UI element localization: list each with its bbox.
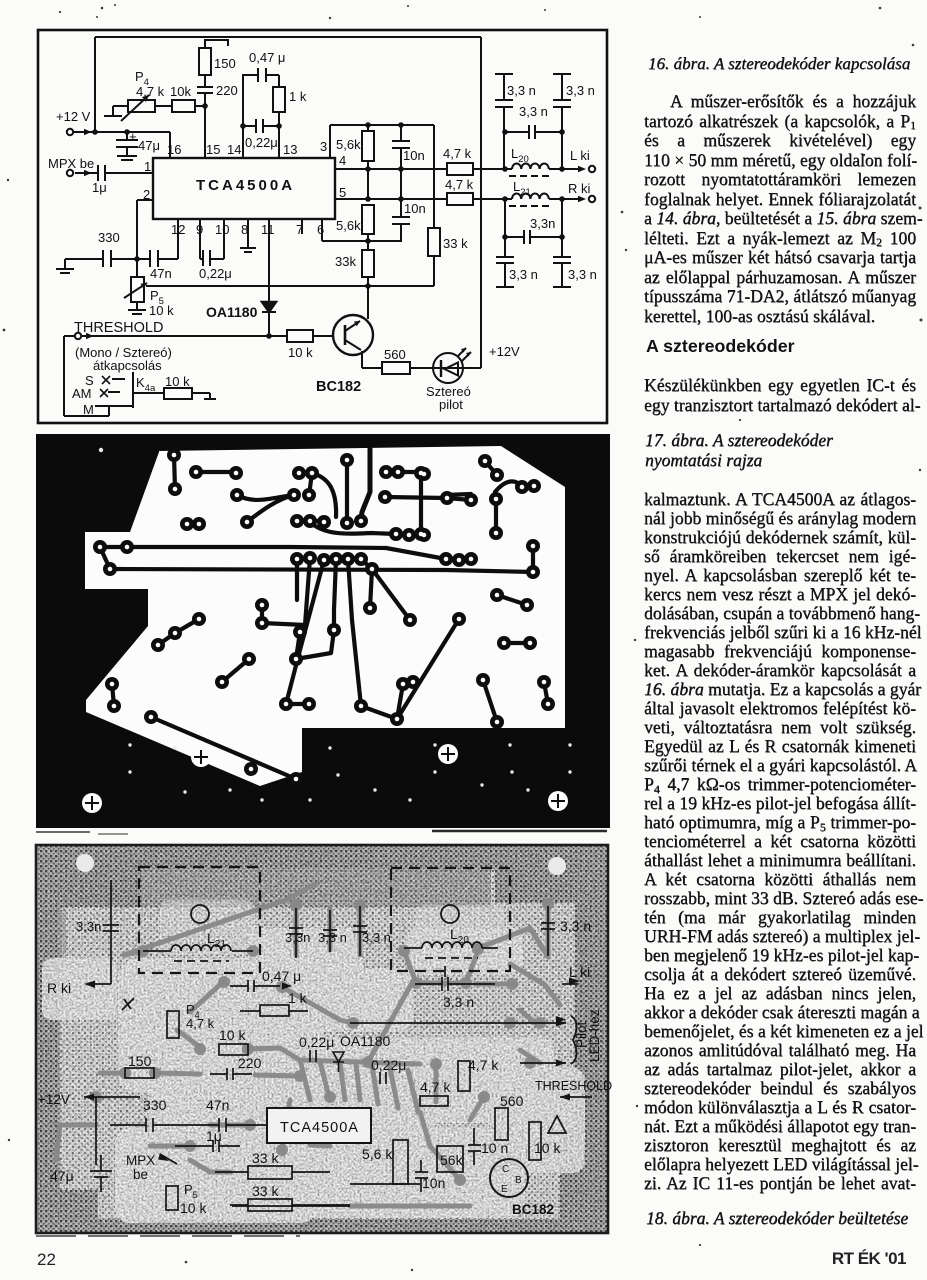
svg-text:0,22μ: 0,22μ (299, 1034, 334, 1050)
svg-text:3,3 n: 3,3 n (318, 930, 347, 945)
svg-text:3,3 n: 3,3 n (362, 930, 391, 945)
svg-text:150: 150 (128, 1053, 152, 1069)
svg-text:4,7 k: 4,7 k (186, 1016, 215, 1031)
svg-text:47n: 47n (206, 1097, 229, 1113)
svg-text:1 k: 1 k (288, 990, 308, 1006)
svg-text:10 k: 10 k (180, 1200, 207, 1216)
svg-text:33 k: 33 k (252, 1183, 279, 1199)
svg-text:3,3 n: 3,3 n (443, 994, 474, 1010)
svg-text:560: 560 (500, 1093, 524, 1109)
svg-text:C: C (502, 1164, 509, 1175)
svg-text:10 k: 10 k (219, 1027, 246, 1043)
svg-text:220: 220 (238, 1055, 262, 1071)
svg-text:10n: 10n (422, 1175, 445, 1191)
svg-text:4,7 k: 4,7 k (468, 1057, 499, 1073)
svg-text:0,47 μ: 0,47 μ (262, 968, 301, 984)
svg-text:33 k: 33 k (252, 1150, 279, 1166)
svg-text:330: 330 (143, 1097, 167, 1113)
svg-text:3,3n: 3,3n (285, 930, 310, 945)
svg-text:+12V: +12V (38, 1092, 70, 1107)
svg-text:1μ: 1μ (206, 1128, 222, 1144)
svg-text:MPX: MPX (126, 1153, 155, 1168)
svg-text:5,6 k: 5,6 k (362, 1146, 393, 1162)
svg-text:LED-hez: LED-hez (587, 1009, 602, 1062)
svg-text:3,3n: 3,3n (76, 919, 101, 934)
svg-text:THRESHOLD: THRESHOLD (535, 1079, 612, 1093)
svg-text:be: be (133, 1167, 148, 1182)
svg-text:L ki: L ki (569, 964, 590, 980)
svg-text:10 k: 10 k (534, 1140, 561, 1156)
svg-text:TCA4500A: TCA4500A (280, 1120, 359, 1136)
svg-text:E: E (501, 1184, 508, 1195)
svg-text:4,7 k: 4,7 k (420, 1079, 451, 1095)
svg-text:10 n: 10 n (481, 1140, 508, 1156)
svg-text:56k: 56k (440, 1152, 464, 1168)
svg-text:B: B (515, 1175, 522, 1186)
svg-text:R ki: R ki (47, 980, 71, 996)
svg-text:OA1180: OA1180 (340, 1033, 391, 1049)
svg-text:0,22μ: 0,22μ (371, 1057, 406, 1073)
svg-text:BC182: BC182 (512, 1202, 554, 1217)
svg-text:47μ: 47μ (50, 1168, 74, 1184)
svg-text:3,3 n: 3,3 n (560, 918, 591, 934)
